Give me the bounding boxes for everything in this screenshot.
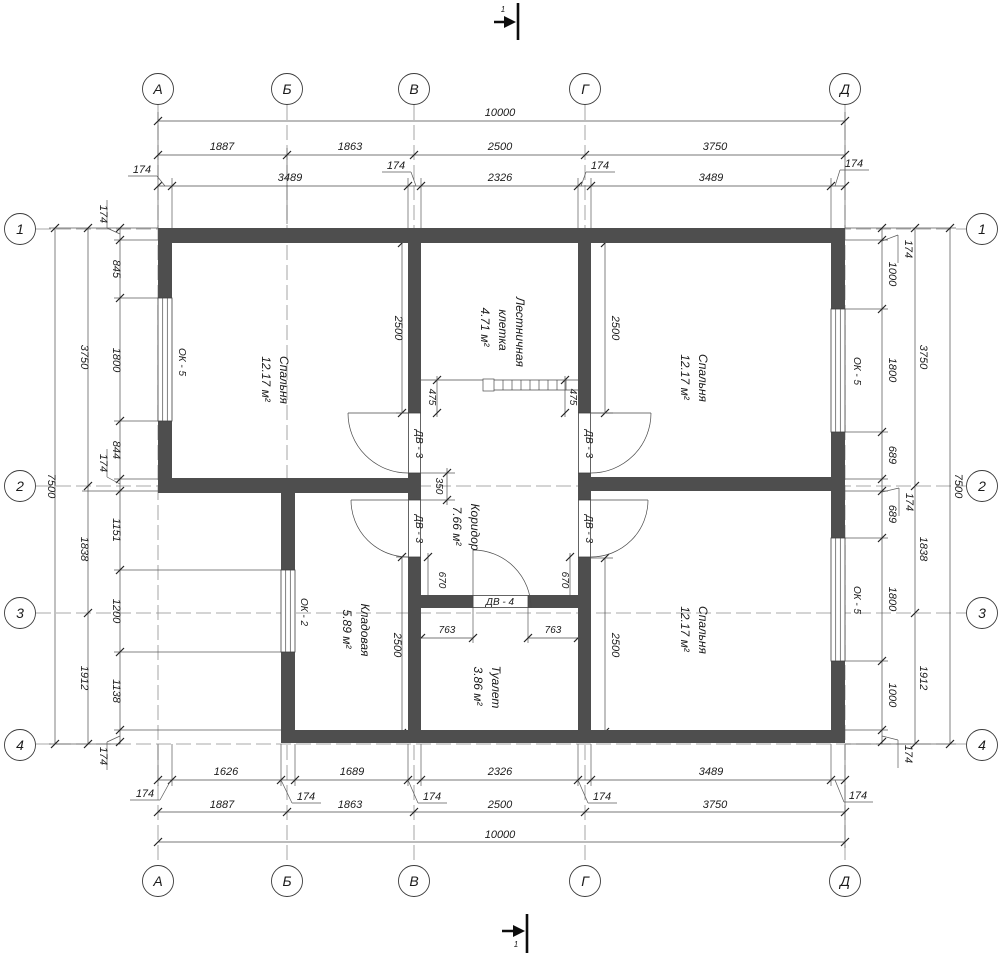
wall-interior-v-left-3 [408, 557, 421, 743]
door-label-dv4-toilet: ДВ - 4 [485, 597, 515, 608]
section-mark-top: 1 [494, 3, 518, 40]
dim-bottom-overall: 10000 [485, 829, 516, 841]
axis-label-top-a: А [152, 81, 162, 97]
section-label-top: 1 [501, 5, 505, 14]
dim-offset: 174 [902, 745, 914, 763]
dim-left-overall: 7500 [45, 474, 57, 499]
dim: 689 [886, 446, 898, 464]
dim: 3750 [703, 141, 728, 153]
dim: 763 [545, 625, 562, 636]
axis-label-top-v: В [409, 81, 418, 97]
dim: 1138 [110, 679, 122, 704]
dims-right: 7500 3750 1838 1912 1000 1800 689 689 18… [886, 240, 964, 763]
dim: 844 [110, 441, 122, 459]
axis-label-right-4: 4 [978, 737, 986, 753]
dim: 1689 [340, 766, 364, 778]
door-label-dv3-left-top: ДВ - 3 [413, 429, 424, 459]
room-area-toilet: 3.86 м² [471, 667, 485, 707]
axis-label-bottom-a: А [152, 873, 162, 889]
room-name-corridor: Коридор [468, 503, 482, 550]
dim: 1800 [886, 358, 898, 383]
wall-bedrooms-right-divider [591, 477, 831, 491]
axis-label-bottom-v: В [409, 873, 418, 889]
dim: 2500 [487, 799, 513, 811]
dims-bottom: 1626 1689 2326 3489 174 174 174 174 174 … [136, 766, 867, 841]
dim: 1912 [917, 666, 929, 690]
wall-exterior-bottom [281, 730, 845, 743]
dim: 1863 [338, 141, 363, 153]
dim: 2500 [609, 315, 621, 341]
dim: 475 [567, 389, 578, 406]
wall-toilet-top-left [421, 595, 473, 608]
dim: 689 [886, 505, 898, 523]
dim: 1800 [110, 348, 122, 373]
axis-label-right-3: 3 [978, 605, 986, 621]
wall-storage-left-lower [281, 652, 295, 743]
room-labels: Спальня 12.17 м² Спальня 12.17 м² Спальн… [259, 296, 710, 708]
dim: 3489 [278, 172, 302, 184]
room-area-bedroom-left: 12.17 м² [259, 356, 273, 403]
dim: 1863 [338, 799, 363, 811]
door-label-dv3-left-bottom: ДВ - 3 [413, 514, 424, 544]
room-area-stairwell: 4.71 м² [478, 308, 492, 348]
window-ok5-right-bottom [831, 538, 845, 661]
room-name-bedroom-left: Спальня [277, 356, 291, 404]
dim: 845 [110, 260, 122, 279]
dim-offset: 174 [387, 160, 405, 172]
window-ok2-storage [281, 570, 295, 652]
room-name-bedroom-top-right: Спальня [696, 354, 710, 402]
dim: 2500 [609, 632, 621, 658]
dim: 1000 [886, 683, 898, 708]
dim-offset: 174 [133, 164, 151, 176]
door-swing-right-bottom [591, 500, 648, 557]
dims-left: 7500 3750 1838 1912 845 1800 844 1151 12… [45, 205, 122, 765]
wall-exterior-right-1 [831, 228, 845, 309]
room-area-corridor: 7.66 м² [450, 507, 464, 547]
room-area-bedroom-top-right: 12.17 м² [678, 354, 692, 401]
dim-offset: 174 [136, 788, 154, 800]
axis-label-top-d: Д [838, 81, 850, 97]
door-swing-right-top [591, 413, 651, 473]
room-name-toilet: Туалет [489, 666, 503, 709]
section-label-bottom: 1 [514, 940, 518, 949]
wall-exterior-right-3 [831, 661, 845, 743]
room-name-stairwell-2: клетка [496, 309, 510, 351]
wall-exterior-top [158, 228, 845, 243]
dim: 1800 [886, 587, 898, 612]
dim: 1626 [214, 766, 239, 778]
wall-storage-left-upper [281, 493, 295, 570]
axis-label-left-2: 2 [15, 478, 24, 494]
axis-label-left-3: 3 [16, 605, 24, 621]
dim-offset: 174 [849, 790, 867, 802]
door-label-dv3-right-top: ДВ - 3 [583, 429, 594, 459]
dim-right-overall: 7500 [952, 474, 964, 499]
dim-offset: 174 [593, 791, 611, 803]
wall-toilet-top-right [528, 595, 578, 608]
dim: 1838 [917, 537, 929, 562]
dim: 763 [439, 625, 456, 636]
dim-top-overall: 10000 [485, 107, 516, 119]
floor-plan-canvas: А Б В Г Д А Б В Г Д 1 2 3 4 1 2 3 4 1000… [0, 0, 1000, 955]
axis-label-right-1: 1 [978, 221, 986, 237]
doors [348, 413, 651, 608]
stair-symbol [421, 379, 578, 391]
dim: 670 [436, 572, 447, 589]
dim: 1838 [78, 537, 90, 562]
dim: 3489 [699, 766, 723, 778]
dim: 475 [426, 389, 437, 406]
dim-offset: 174 [591, 160, 609, 172]
dim: 1200 [110, 599, 122, 624]
room-name-storage: Кладовая [358, 604, 372, 657]
dim: 2500 [392, 315, 404, 341]
window-ok5-right-top [831, 309, 845, 432]
dim-offset: 174 [97, 205, 109, 223]
wall-interior-v-right-2 [578, 473, 591, 500]
window-ok5-left [158, 298, 172, 421]
dim: 2326 [487, 172, 513, 184]
wall-bedroom-left-bottom [158, 478, 421, 493]
dim-offset: 174 [97, 747, 109, 765]
door-swing-left-bottom [351, 500, 408, 557]
dim: 1151 [110, 518, 122, 542]
window-label-ok5-left: ОК - 5 [176, 348, 187, 377]
wall-exterior-right-2 [831, 432, 845, 538]
dim: 1912 [78, 666, 90, 690]
room-name-bedroom-bottom-right: Спальня [696, 606, 710, 654]
dim-offset: 174 [903, 493, 915, 511]
axis-label-bottom-b: Б [282, 873, 291, 889]
axis-label-left-1: 1 [16, 221, 24, 237]
wall-interior-v-left-1 [408, 243, 421, 413]
room-name-stairwell-1: Лестничная [513, 296, 527, 368]
dim: 670 [559, 572, 570, 589]
dim-offset: 174 [297, 791, 315, 803]
axis-label-right-2: 2 [977, 478, 986, 494]
dim-offset: 174 [845, 158, 863, 170]
dim-offset: 174 [902, 240, 914, 258]
wall-exterior-left-upper [158, 228, 172, 298]
dim: 2326 [487, 766, 513, 778]
room-area-storage: 5.89 м² [340, 610, 354, 650]
section-mark-bottom: 1 [502, 914, 527, 953]
axis-label-left-4: 4 [16, 737, 24, 753]
dim-offset: 174 [97, 454, 109, 472]
dim: 3750 [78, 345, 90, 370]
door-label-dv3-right-bottom: ДВ - 3 [583, 514, 594, 544]
dim: 350 [433, 478, 444, 495]
wall-interior-v-right-1 [578, 243, 591, 413]
wall-interior-v-left-2 [408, 473, 421, 500]
room-area-bedroom-bottom-right: 12.17 м² [678, 606, 692, 653]
dim: 2500 [487, 141, 513, 153]
window-label-ok5-right-top: ОК - 5 [851, 357, 862, 386]
axis-label-bottom-d: Д [838, 873, 850, 889]
window-label-ok2-storage: ОК - 2 [298, 598, 309, 627]
dim: 1000 [886, 262, 898, 287]
dim: 2500 [391, 632, 403, 658]
dim: 1887 [210, 799, 235, 811]
axis-label-top-b: Б [282, 81, 291, 97]
door-swing-left-top [348, 413, 408, 473]
dim-offset: 174 [423, 791, 441, 803]
dim: 3489 [699, 172, 723, 184]
floor-plan-drawing: А Б В Г Д А Б В Г Д 1 2 3 4 1 2 3 4 1000… [0, 0, 1000, 955]
dim: 3750 [703, 799, 728, 811]
window-label-ok5-right-bottom: ОК - 5 [851, 586, 862, 615]
dim: 1887 [210, 141, 235, 153]
wall-interior-v-right-3 [578, 557, 591, 743]
dim: 3750 [917, 345, 929, 370]
dims-top: 10000 1887 1863 2500 3750 3489 2326 3489… [133, 107, 863, 184]
